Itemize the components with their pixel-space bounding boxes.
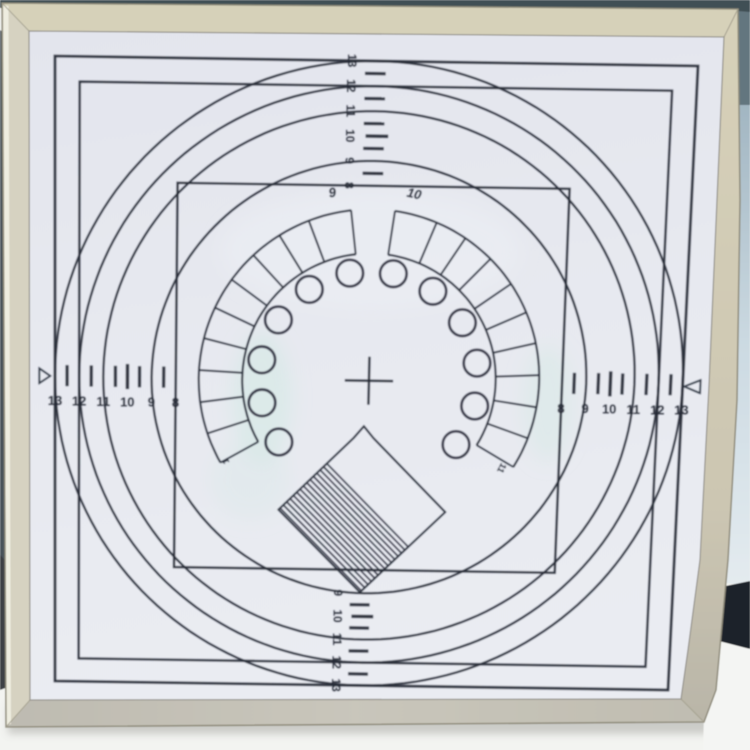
svg-text:12: 12 xyxy=(330,656,344,670)
svg-text:13: 13 xyxy=(674,403,688,418)
svg-text:12: 12 xyxy=(650,402,664,417)
svg-text:11: 11 xyxy=(96,394,110,409)
svg-text:10: 10 xyxy=(331,609,345,623)
svg-text:11: 11 xyxy=(344,104,358,117)
svg-text:10: 10 xyxy=(602,402,616,417)
svg-text:13: 13 xyxy=(48,393,62,408)
svg-text:10: 10 xyxy=(120,394,134,409)
svg-text:12: 12 xyxy=(344,79,358,93)
svg-text:11: 11 xyxy=(330,633,344,646)
svg-text:9: 9 xyxy=(148,395,155,410)
svg-text:13: 13 xyxy=(329,678,343,692)
svg-text:8: 8 xyxy=(342,182,356,189)
svg-text:9: 9 xyxy=(581,401,588,416)
svg-text:8: 8 xyxy=(172,395,179,410)
svg-text:9: 9 xyxy=(343,157,357,164)
svg-text:11: 11 xyxy=(626,402,640,417)
svg-text:12: 12 xyxy=(72,394,86,409)
svg-text:8: 8 xyxy=(557,401,564,416)
svg-text:10: 10 xyxy=(343,129,357,143)
svg-text:9: 9 xyxy=(331,590,345,597)
svg-text:13: 13 xyxy=(345,54,359,68)
